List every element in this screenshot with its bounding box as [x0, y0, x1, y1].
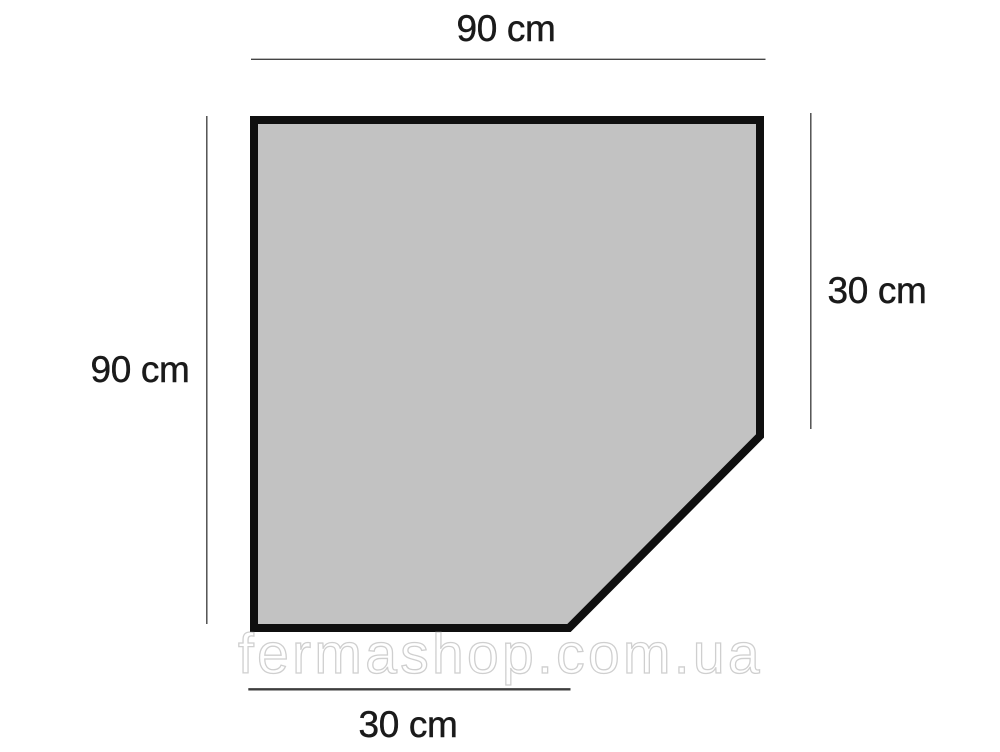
svg-text:30 cm: 30 cm [827, 270, 926, 311]
svg-text:30 cm: 30 cm [358, 704, 457, 745]
svg-text:90 cm: 90 cm [456, 8, 555, 49]
svg-text:fermashop.com.ua: fermashop.com.ua [238, 622, 763, 686]
svg-text:90 cm: 90 cm [90, 349, 189, 390]
